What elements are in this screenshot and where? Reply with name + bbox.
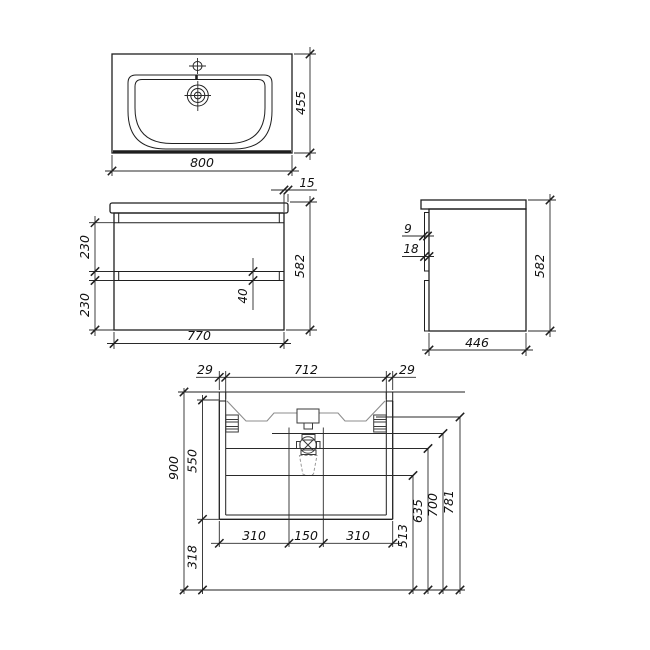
faucet-hole-icon xyxy=(189,58,206,74)
front-view: 15 582 40 230 230 xyxy=(77,176,317,349)
dim-floor-clearance-label: 318 xyxy=(185,545,200,569)
dim-side-height-label: 582 xyxy=(532,254,547,278)
dim-span-right-label: 310 xyxy=(346,528,370,543)
dim-side-depth-label: 446 xyxy=(465,335,489,350)
vanity-technical-drawing: 800 455 15 58 xyxy=(0,0,650,650)
dim-h-drain-label: 700 xyxy=(425,493,440,517)
dim-cabinet-height-label: 550 xyxy=(185,449,200,473)
dim-h-siphon-label: 513 xyxy=(395,524,410,548)
side-lower-drawer-front xyxy=(425,281,430,332)
side-upper-drawer-front xyxy=(425,213,430,272)
dim-inner-width-label: 712 xyxy=(294,362,318,377)
drain-icon xyxy=(185,81,212,111)
wall-bracket-left xyxy=(226,415,239,432)
dim-top-width: 800 xyxy=(105,155,299,176)
dim-install-bottom: 310 150 310 xyxy=(211,528,401,548)
dim-install-right: 513 635 700 781 xyxy=(395,413,464,594)
dim-front-width-label: 770 xyxy=(187,328,211,343)
dim-upper-drawer-label: 230 xyxy=(77,235,92,259)
drain-box xyxy=(297,409,319,423)
dim-left-margin-label: 29 xyxy=(197,362,213,377)
basin-outline xyxy=(128,75,272,149)
dim-span-center-label: 150 xyxy=(294,528,318,543)
side-cabinet-body xyxy=(429,209,526,331)
dim-total-height-label: 900 xyxy=(166,456,181,480)
dim-top-depth-label: 455 xyxy=(293,91,308,115)
side-view: 9 18 582 446 xyxy=(402,194,556,356)
top-view: 800 455 xyxy=(105,47,316,176)
dim-front-width: 770 xyxy=(107,328,291,349)
dim-right-margin-label: 29 xyxy=(399,362,415,377)
dim-top-depth: 455 xyxy=(293,47,316,160)
dim-top-width-label: 800 xyxy=(190,155,214,170)
drawing-canvas: 800 455 15 58 xyxy=(0,0,650,650)
siphon-assembly xyxy=(297,409,321,476)
dim-front-overhang-label: 15 xyxy=(299,176,314,190)
dim-side-gap9-label: 9 xyxy=(404,222,412,236)
dim-front-height: 582 xyxy=(286,196,317,336)
dim-install-top: 29 712 29 xyxy=(196,362,416,399)
installation-view: 29 712 29 900 550 318 310 150 310 xyxy=(166,362,465,594)
side-countertop xyxy=(421,200,526,209)
siphon-trap xyxy=(300,456,318,476)
dim-h-valve-label: 635 xyxy=(410,499,425,523)
dim-h-bracket-label: 781 xyxy=(441,490,456,514)
dim-span-left-label: 310 xyxy=(242,528,266,543)
dim-drawer-gap-label: 40 xyxy=(236,288,250,304)
dim-side-depth: 446 xyxy=(422,333,533,356)
wall-bracket-right xyxy=(374,415,387,432)
dim-drawer-gap: 40 xyxy=(236,258,257,310)
dim-side-thickness18-label: 18 xyxy=(403,242,419,256)
basin-section-profile xyxy=(227,401,385,421)
dim-lower-drawer-label: 230 xyxy=(77,293,92,317)
dim-front-drawers: 230 230 xyxy=(77,216,114,336)
dim-install-left: 900 550 318 xyxy=(166,388,219,594)
dim-front-height-label: 582 xyxy=(292,254,307,278)
dim-side-height: 582 xyxy=(528,194,556,337)
front-countertop xyxy=(110,203,288,213)
